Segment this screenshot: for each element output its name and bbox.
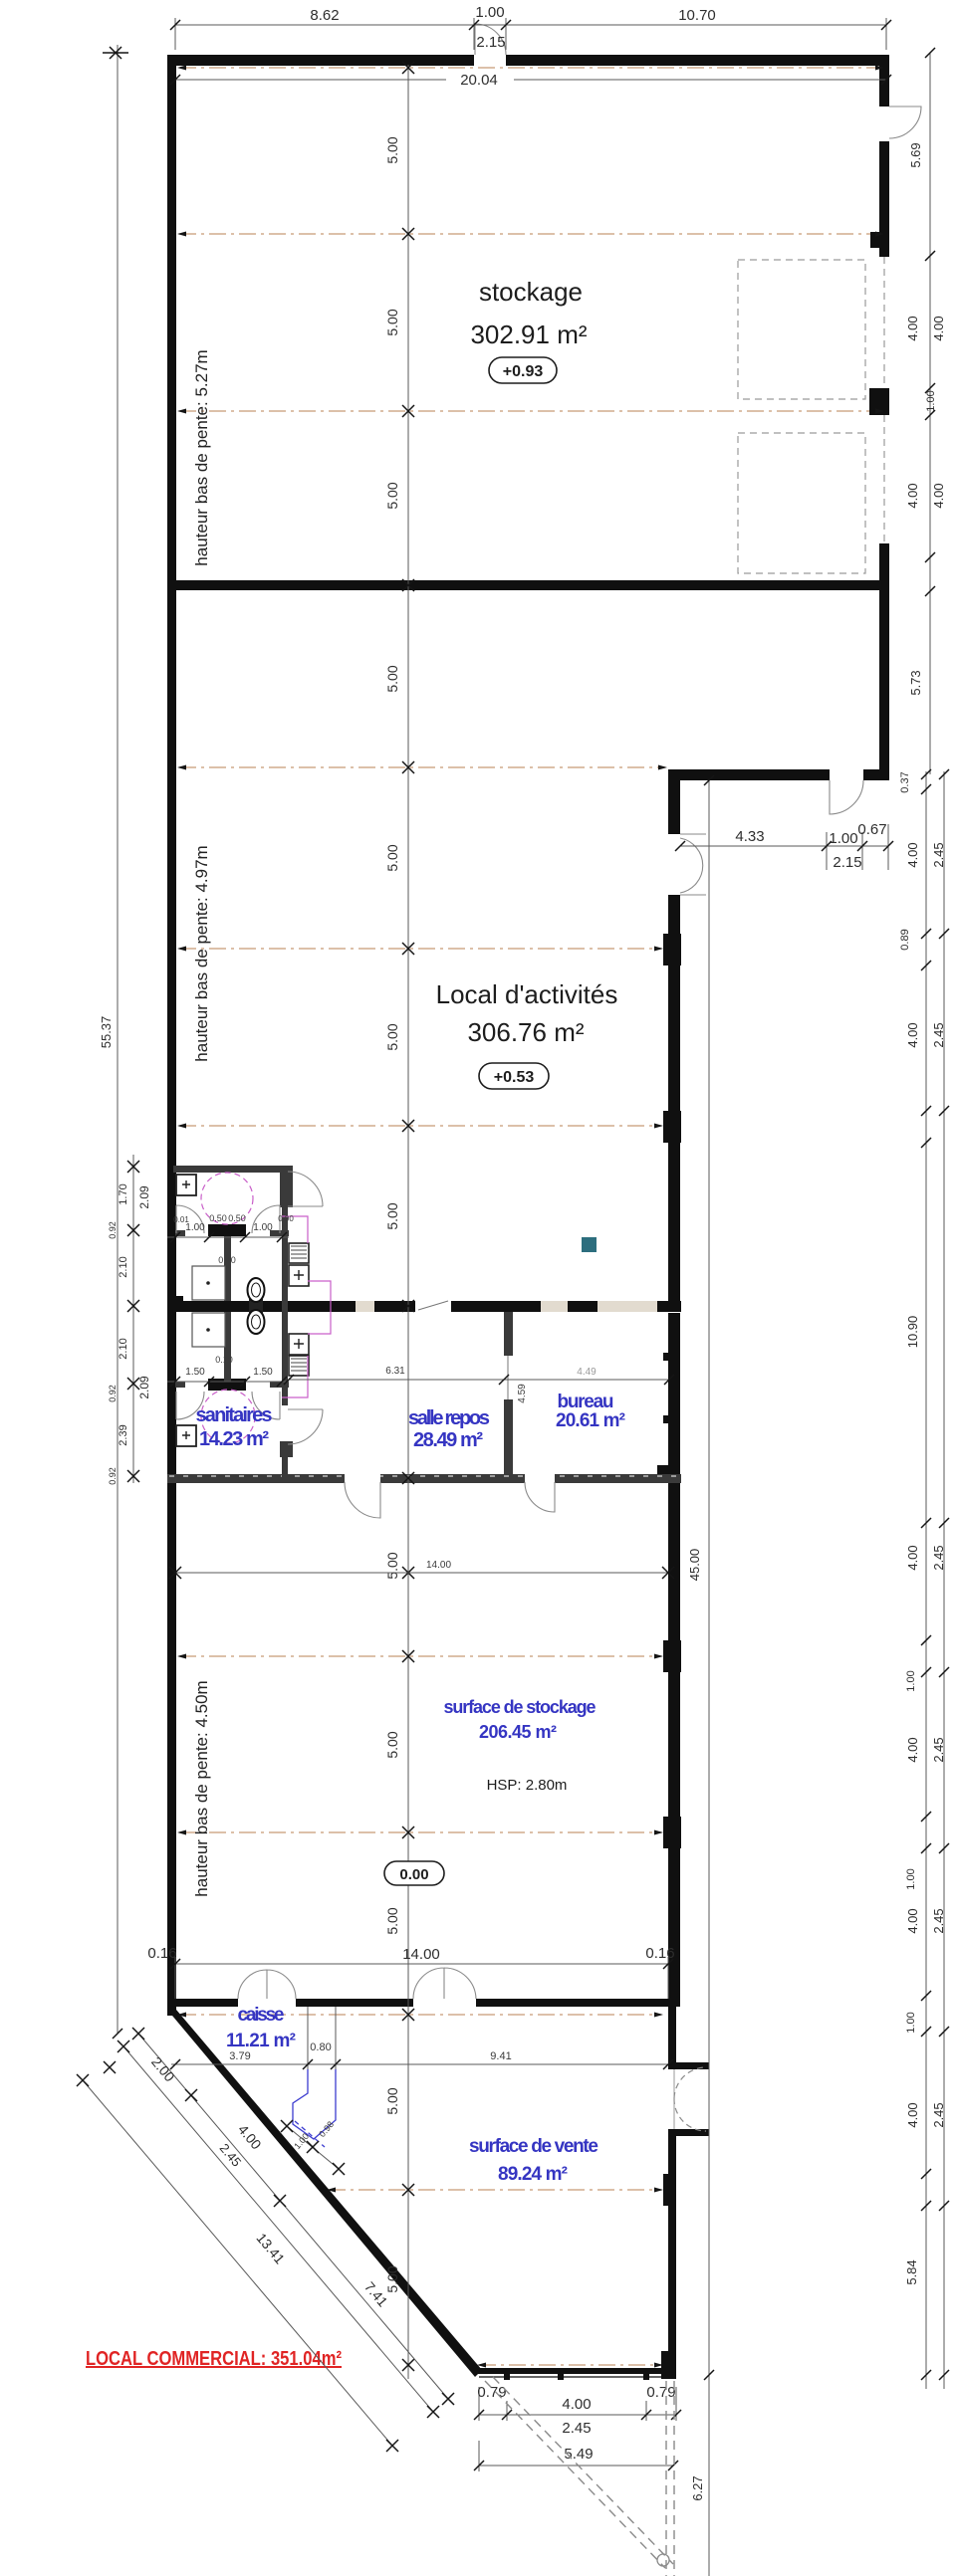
svg-text:0.79: 0.79 <box>477 2384 506 2401</box>
svg-text:5.00: 5.00 <box>384 1907 400 1934</box>
svg-text:1.00: 1.00 <box>905 2012 917 2033</box>
svg-text:0.50: 0.50 <box>228 1213 246 1223</box>
svg-text:1.00: 1.00 <box>829 830 857 847</box>
svg-text:206.45 m²: 206.45 m² <box>479 1722 557 1742</box>
svg-text:5.00: 5.00 <box>384 665 400 692</box>
svg-text:4.00: 4.00 <box>905 483 920 508</box>
svg-text:1.00: 1.00 <box>253 1222 273 1233</box>
svg-text:1.70: 1.70 <box>118 1183 129 1204</box>
svg-text:0.67: 0.67 <box>857 821 886 838</box>
svg-text:11.21 m²: 11.21 m² <box>226 2031 296 2051</box>
svg-text:20.61 m²: 20.61 m² <box>556 1410 625 1431</box>
svg-text:2.15: 2.15 <box>476 34 505 51</box>
svg-text:1.00: 1.00 <box>905 1670 917 1691</box>
svg-text:6.27: 6.27 <box>690 2475 705 2500</box>
svg-text:5.00: 5.00 <box>384 1731 400 1758</box>
svg-text:hauteur bas de pente: 4.97m: hauteur bas de pente: 4.97m <box>192 845 211 1061</box>
svg-text:4.00: 4.00 <box>905 1545 920 1570</box>
svg-text:1.00: 1.00 <box>905 1868 917 1889</box>
svg-text:6.31: 6.31 <box>385 1366 405 1377</box>
svg-text:2.45: 2.45 <box>931 1022 946 1047</box>
svg-text:0.37: 0.37 <box>899 771 911 792</box>
svg-text:14.00: 14.00 <box>402 1946 440 1963</box>
svg-text:0.10: 0.10 <box>215 1355 233 1365</box>
svg-text:2.45: 2.45 <box>931 842 946 867</box>
svg-text:5.00: 5.00 <box>384 844 400 871</box>
svg-text:4.33: 4.33 <box>735 828 764 845</box>
svg-text:10.90: 10.90 <box>905 1316 920 1349</box>
svg-text:4.00: 4.00 <box>905 1737 920 1762</box>
svg-text:20.04: 20.04 <box>460 72 498 89</box>
svg-text:1.00: 1.00 <box>185 1222 205 1233</box>
svg-text:1.50: 1.50 <box>185 1367 205 1378</box>
svg-text:2.45: 2.45 <box>931 1545 946 1570</box>
svg-text:5.00: 5.00 <box>384 309 400 335</box>
svg-text:0.92: 0.92 <box>108 1385 118 1402</box>
svg-text:45.00: 45.00 <box>687 1549 702 1582</box>
svg-text:0.90: 0.90 <box>278 1214 294 1223</box>
svg-text:0.80: 0.80 <box>310 2041 331 2053</box>
svg-text:5.69: 5.69 <box>908 142 923 167</box>
svg-text:2.45: 2.45 <box>931 1737 946 1762</box>
svg-text:Local d'activités: Local d'activités <box>436 979 618 1009</box>
svg-text:salle repos: salle repos <box>408 1407 490 1429</box>
svg-text:4.00: 4.00 <box>562 2396 591 2413</box>
svg-text:2.45: 2.45 <box>931 2102 946 2127</box>
svg-text:14.23 m²: 14.23 m² <box>199 1428 269 1450</box>
svg-text:bureau: bureau <box>558 1392 614 1412</box>
svg-text:5.73: 5.73 <box>908 670 923 695</box>
svg-text:5.00: 5.00 <box>384 136 400 163</box>
svg-text:+0.53: +0.53 <box>494 1069 535 1086</box>
svg-text:1.00: 1.00 <box>925 390 937 411</box>
svg-text:5.49: 5.49 <box>564 2446 593 2463</box>
svg-text:4.00: 4.00 <box>905 1022 920 1047</box>
svg-text:hauteur bas de pente: 4.50m: hauteur bas de pente: 4.50m <box>192 1680 211 1896</box>
svg-text:28.49 m²: 28.49 m² <box>413 1429 483 1451</box>
svg-text:hauteur bas de pente: 5.27m: hauteur bas de pente: 5.27m <box>192 349 211 565</box>
svg-text:2.09: 2.09 <box>137 1185 151 1209</box>
svg-text:3.79: 3.79 <box>229 2050 250 2062</box>
svg-text:0.89: 0.89 <box>899 929 911 950</box>
svg-text:5.00: 5.00 <box>384 2087 400 2114</box>
svg-text:55.37: 55.37 <box>99 1016 114 1049</box>
svg-text:14.00: 14.00 <box>426 1560 451 1571</box>
svg-text:5.00: 5.00 <box>384 482 400 509</box>
svg-text:10.70: 10.70 <box>678 7 716 24</box>
svg-text:stockage: stockage <box>479 277 583 307</box>
svg-text:surface de vente: surface de vente <box>469 2136 598 2157</box>
svg-text:0.16: 0.16 <box>147 1945 176 1962</box>
svg-text:LOCAL COMMERCIAL: 351.04m²: LOCAL COMMERCIAL: 351.04m² <box>86 2348 342 2370</box>
svg-text:302.91 m²: 302.91 m² <box>470 320 587 349</box>
svg-text:89.24 m²: 89.24 m² <box>498 2164 568 2185</box>
svg-text:sanitaires: sanitaires <box>196 1404 273 1426</box>
svg-text:0.16: 0.16 <box>645 1945 674 1962</box>
svg-text:0.92: 0.92 <box>108 1221 118 1239</box>
svg-text:4.00: 4.00 <box>931 316 946 340</box>
svg-text:9.41: 9.41 <box>490 2050 511 2062</box>
svg-text:0.50: 0.50 <box>209 1213 227 1223</box>
svg-text:2.39: 2.39 <box>118 1424 129 1445</box>
svg-text:2.10: 2.10 <box>118 1256 129 1277</box>
svg-text:4.00: 4.00 <box>905 842 920 867</box>
svg-text:0.00: 0.00 <box>399 1866 428 1883</box>
svg-text:8.62: 8.62 <box>310 7 339 24</box>
svg-text:4.00: 4.00 <box>905 1908 920 1933</box>
svg-text:caisse: caisse <box>238 2005 285 2026</box>
svg-text:5.00: 5.00 <box>384 1552 400 1579</box>
svg-text:HSP: 2.80m: HSP: 2.80m <box>487 1777 568 1794</box>
svg-text:306.76 m²: 306.76 m² <box>467 1017 584 1047</box>
svg-text:2.09: 2.09 <box>137 1376 151 1399</box>
svg-text:surface de stockage: surface de stockage <box>444 1697 597 1717</box>
svg-text:0.92: 0.92 <box>108 1467 118 1485</box>
svg-text:+0.93: +0.93 <box>503 363 544 380</box>
svg-text:2.45: 2.45 <box>562 2420 591 2437</box>
svg-text:1.50: 1.50 <box>253 1367 273 1378</box>
svg-text:2.10: 2.10 <box>118 1338 129 1359</box>
svg-text:2.45: 2.45 <box>931 1908 946 1933</box>
svg-text:5.00: 5.00 <box>384 1202 400 1229</box>
svg-text:4.49: 4.49 <box>577 1367 597 1378</box>
svg-text:5.00: 5.00 <box>384 2265 400 2292</box>
svg-text:0.10: 0.10 <box>218 1255 236 1265</box>
svg-text:4.59: 4.59 <box>517 1384 528 1403</box>
svg-text:4.00: 4.00 <box>905 2102 920 2127</box>
svg-text:5.84: 5.84 <box>904 2259 919 2284</box>
svg-text:4.00: 4.00 <box>905 316 920 340</box>
svg-text:2.15: 2.15 <box>833 854 861 871</box>
svg-text:1.00: 1.00 <box>475 4 504 21</box>
svg-text:0.79: 0.79 <box>646 2384 675 2401</box>
svg-text:5.00: 5.00 <box>384 1023 400 1050</box>
svg-text:4.00: 4.00 <box>931 483 946 508</box>
